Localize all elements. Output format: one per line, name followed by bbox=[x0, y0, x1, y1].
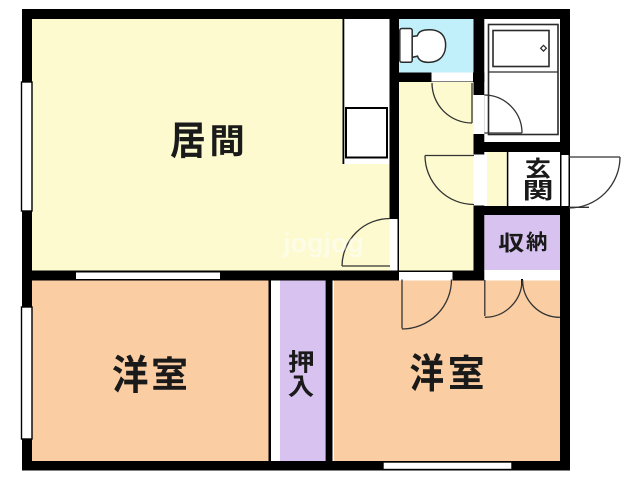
svg-text:jogjog: jogjog bbox=[282, 228, 364, 258]
